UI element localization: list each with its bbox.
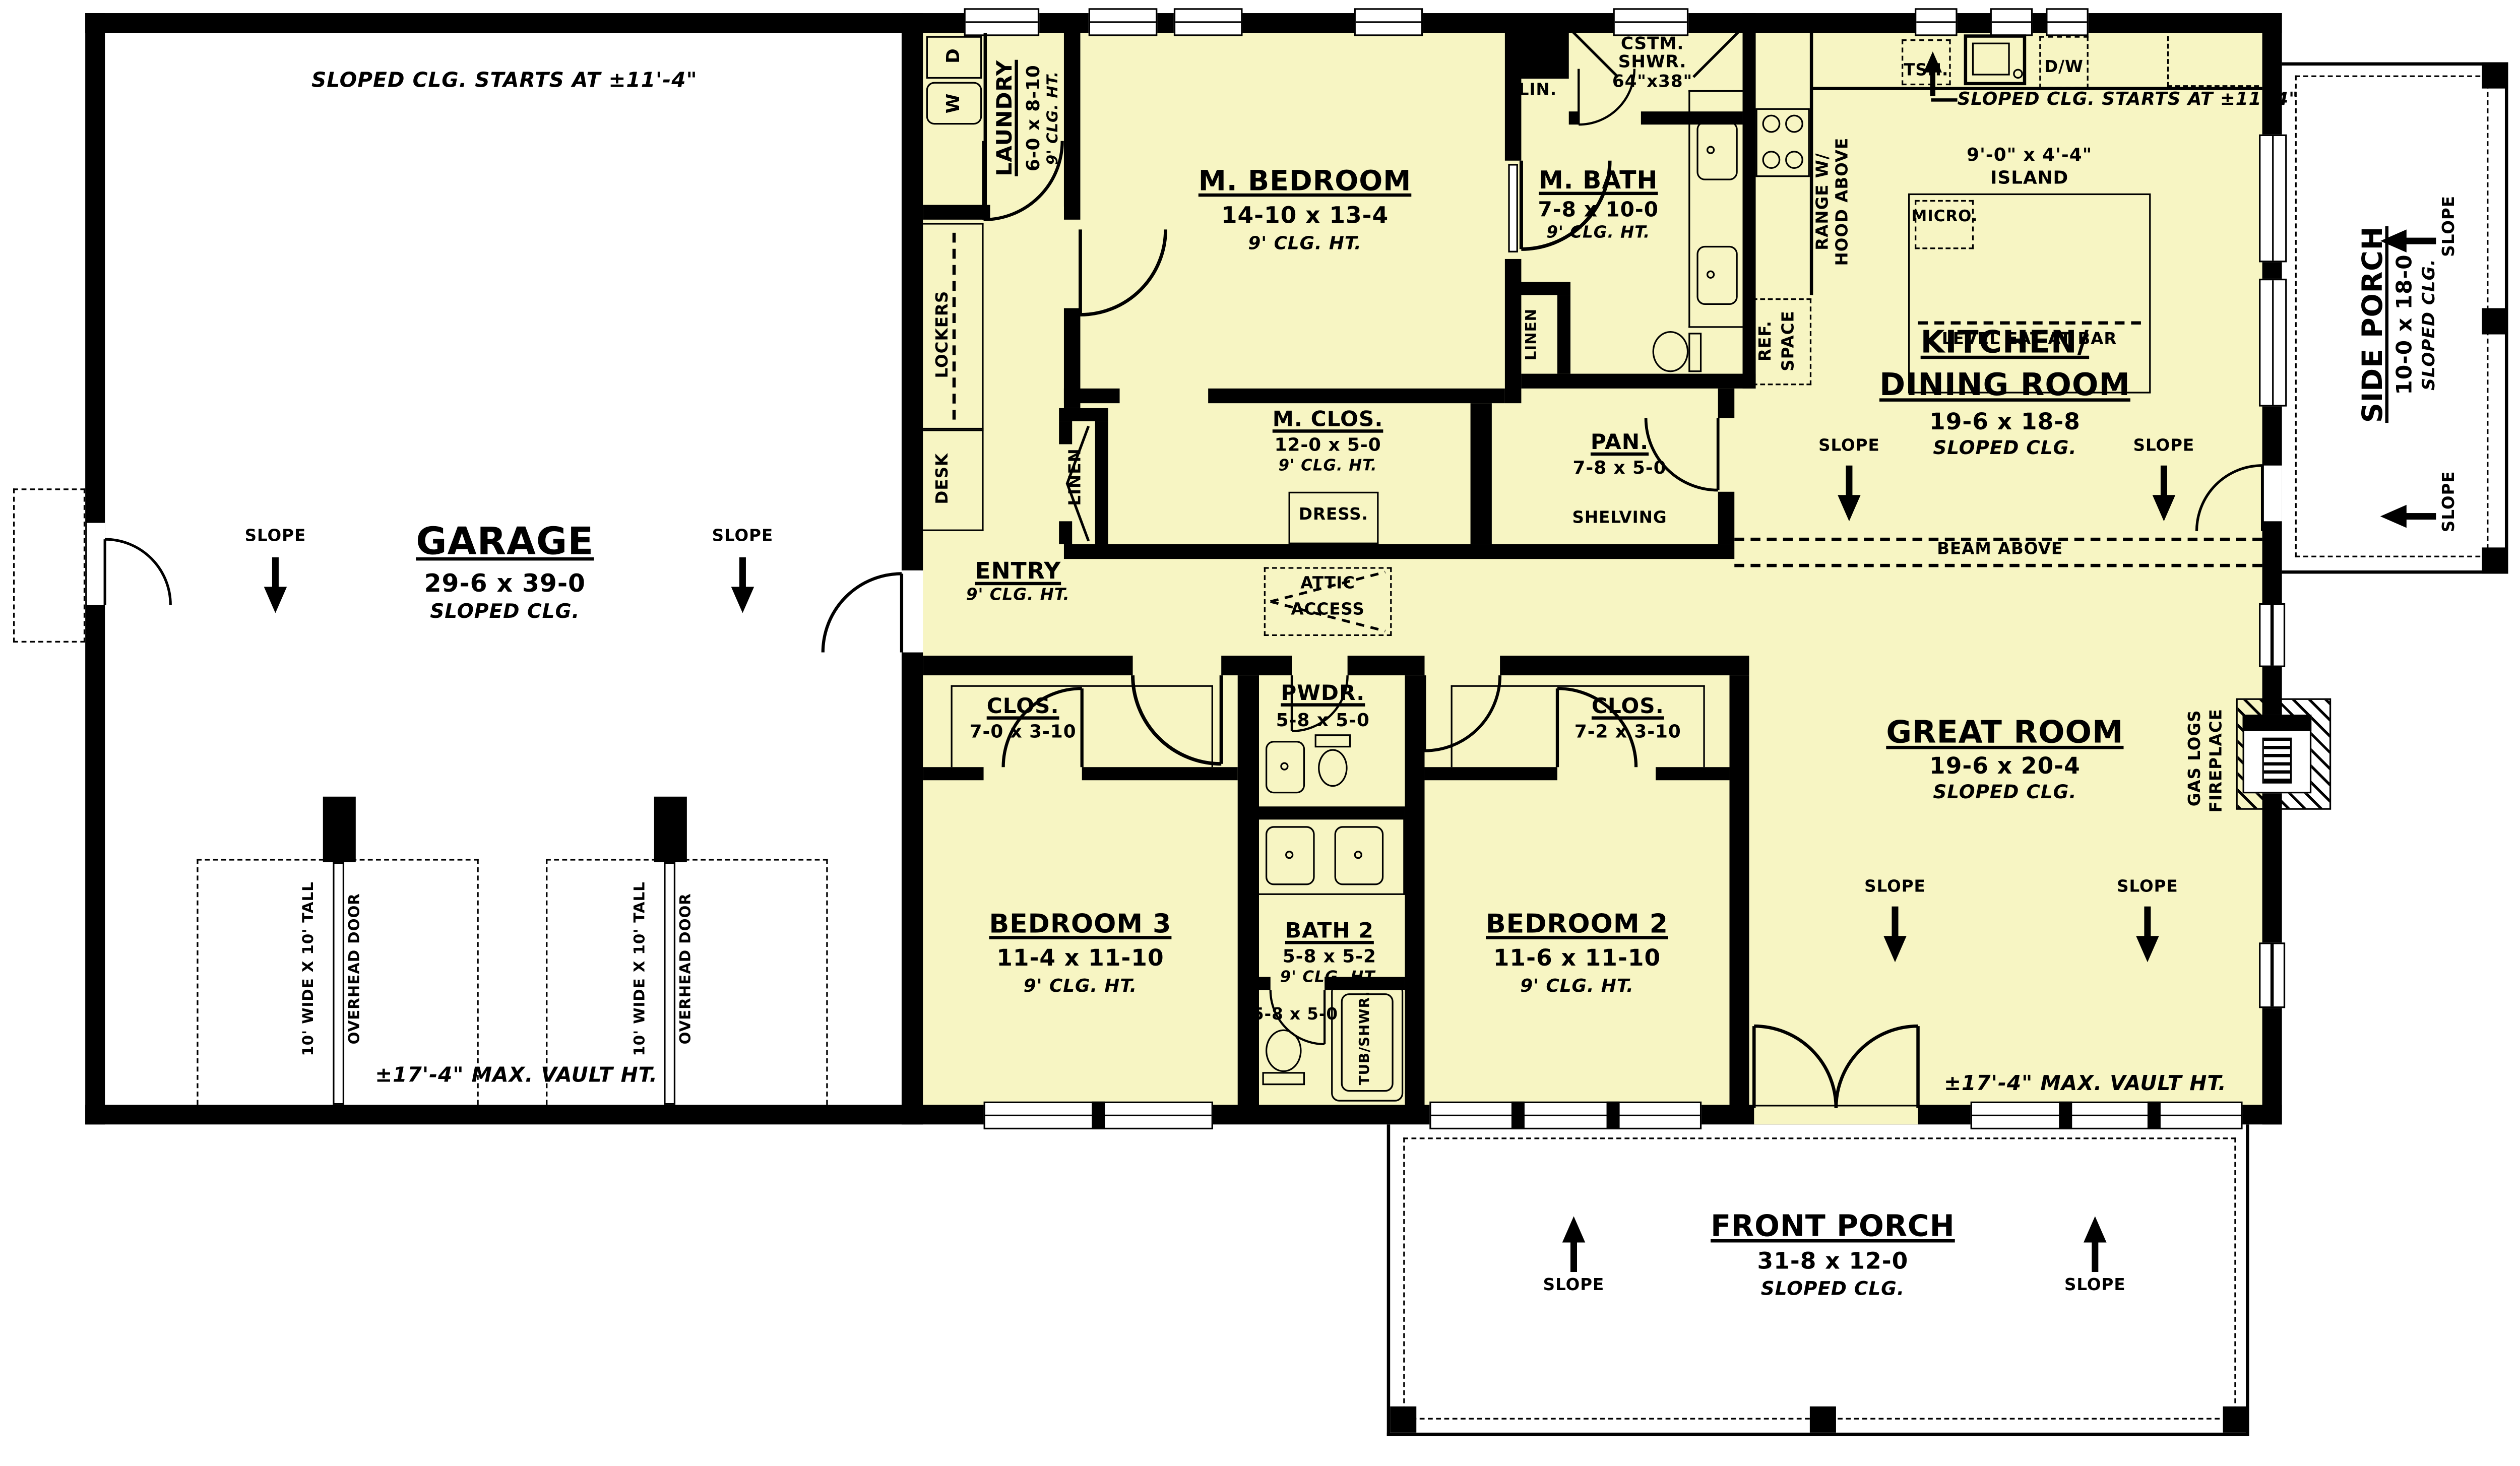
toilet-bowl: [1653, 331, 1689, 372]
lin-label: LIN.: [1511, 84, 1564, 100]
window: [1971, 1102, 2243, 1129]
window: [1915, 8, 1958, 36]
overhead-door-track: [333, 862, 344, 1105]
door: [1646, 418, 1718, 490]
range-label2: HOOD ABOVE: [1835, 95, 1853, 308]
door: [984, 141, 1062, 220]
window-mullion: [2059, 1102, 2072, 1129]
wall: [923, 205, 990, 220]
door: [1080, 229, 1165, 314]
linen-label: LINEN: [1525, 298, 1541, 370]
room-dims: 11-6 x 11-10: [1429, 947, 1724, 971]
room-name: GREAT ROOM: [1849, 718, 2161, 750]
slope-label: SLOPE: [234, 530, 317, 546]
room-dims: 29-6 x 39-0: [374, 572, 636, 597]
room-name: M. BEDROOM: [1157, 169, 1452, 197]
toilet-bowl: [1318, 749, 1348, 787]
island-dims: 9'-0" x 4'-4": [1964, 146, 2095, 164]
ref-label2: SPACE: [1780, 303, 1798, 379]
wall: [1505, 259, 1522, 403]
toilet-tank: [1263, 1072, 1305, 1085]
door: [105, 539, 170, 605]
dw-label: D/W: [2036, 60, 2092, 77]
kitchen-sloped-clg-note: SLOPED CLG. STARTS AT ±11'-4": [1958, 90, 2252, 108]
wall: [902, 653, 923, 1125]
sink-drain: [1285, 851, 1293, 859]
door: [1557, 688, 1636, 767]
micro-label: MICRO.: [1912, 210, 1977, 226]
beam-line: [1734, 564, 2262, 567]
wall: [1718, 492, 1735, 544]
wall: [1471, 403, 1492, 544]
desk-cabinet: [923, 429, 983, 531]
overhead-size-label: 10' WIDE X 10' TALL: [301, 875, 318, 1062]
window: [1429, 1102, 1702, 1129]
wall: [1208, 389, 1505, 403]
overhead-size-label: 10' WIDE X 10' TALL: [633, 875, 650, 1062]
door-slab: [1508, 164, 1518, 252]
door: [1425, 675, 1500, 751]
toilet-tank: [1315, 734, 1351, 747]
beam-label: BEAM ABOVE: [1869, 543, 2131, 559]
room-name: KITCHEN/: [1857, 328, 2152, 360]
room-dims: 11-4 x 11-10: [933, 947, 1228, 971]
window: [2259, 135, 2287, 263]
room-dims: 31-8 x 12-0: [1677, 1251, 1988, 1274]
room-clg: SLOPED CLG.: [374, 602, 636, 622]
overhead-door-label: OVERHEAD DOOR: [348, 882, 364, 1056]
wall: [1729, 675, 1749, 1108]
range-label1: RANGE W/: [1815, 105, 1833, 298]
counter-edge: [1810, 33, 1812, 295]
wall: [1508, 282, 1570, 295]
dryer-label: D: [942, 44, 964, 68]
slope-label: SLOPE: [2123, 439, 2205, 456]
desk-label: DESK: [934, 433, 953, 525]
window: [1174, 8, 1243, 36]
door: [1133, 675, 1222, 764]
wall: [1348, 656, 1425, 675]
wall: [1500, 656, 1749, 675]
door-opening: [2264, 466, 2282, 522]
wall: [902, 13, 923, 570]
window-mullion: [1607, 1102, 1620, 1129]
window: [2259, 603, 2285, 667]
porch-edge: [2282, 62, 2508, 66]
slope-label: SLOPE: [702, 530, 784, 546]
slope-label: SLOPE: [1533, 1279, 1615, 1295]
window: [964, 8, 1040, 36]
room-name: BATH 2: [1271, 921, 1389, 943]
window: [1990, 8, 2033, 36]
slope-arrow: [2380, 505, 2436, 528]
floor-plan: GARAGE 29-6 x 39-0 SLOPED CLG. SLOPE SLO…: [0, 0, 2520, 1466]
room-dims: 14-10 x 13-4: [1157, 205, 1452, 228]
wall: [1656, 767, 1729, 780]
room-dims: 5-8 x 5-2: [1271, 947, 1389, 966]
slope-arrow: [1562, 1216, 1586, 1272]
room-name: FRONT PORCH: [1677, 1213, 1988, 1243]
wall: [1259, 977, 1271, 990]
window-mullion: [1092, 1102, 1105, 1129]
garage-sloped-clg-note: SLOPED CLG. STARTS AT ±11'-4": [311, 71, 705, 91]
wall: [1221, 656, 1292, 675]
great-vault-note: ±17'-4" MAX. VAULT HT.: [1938, 1073, 2233, 1094]
slope-arrow: [2153, 466, 2176, 522]
shelving-label: SHELVING: [1554, 512, 1685, 528]
fireplace-grate: [2262, 738, 2292, 784]
leader-line: [1931, 98, 1958, 101]
fireplace-label1: GAS LOGS: [2187, 715, 2205, 806]
sink-drain: [1707, 271, 1715, 279]
room-clg: 9' CLG. HT.: [951, 589, 1086, 605]
room-clg: 9' CLG. HT.: [1429, 977, 1724, 995]
ref-label1: REF.: [1757, 308, 1776, 373]
slope-label: SLOPE: [2107, 880, 2189, 897]
wall: [1510, 28, 1569, 79]
sloped-clg-arrow: [1924, 51, 1942, 96]
door: [1003, 688, 1082, 767]
porch-post: [2223, 1407, 2249, 1433]
door-opening: [1754, 1107, 1918, 1125]
door: [2196, 466, 2262, 531]
toilet-tank: [1688, 333, 1702, 372]
bifold-door: [1062, 423, 1092, 544]
wall: [1569, 111, 1579, 124]
wall: [1064, 544, 1734, 559]
door: [1292, 675, 1348, 731]
tub-label: TUB/SHWR.: [1357, 993, 1374, 1085]
window: [1354, 8, 1423, 36]
wall: [1405, 675, 1424, 1108]
slope-arrow: [2136, 907, 2159, 963]
attic-label1: ATTIC: [1272, 577, 1383, 594]
sink: [1696, 246, 1737, 305]
door: [1579, 69, 1634, 125]
porch-ceiling-line: [2295, 76, 2489, 557]
front-door-left: [1754, 1026, 1836, 1108]
room-clg: SLOPED CLG.: [1677, 1280, 1988, 1299]
porch-post: [1810, 1407, 1836, 1433]
window-mullion: [2148, 1102, 2161, 1129]
room-dims: 12-0 x 5-0: [1221, 436, 1434, 454]
wall: [1059, 408, 1108, 421]
fireplace-firebox: [2243, 715, 2312, 731]
overhead-door-post: [323, 797, 356, 862]
stoop: [13, 488, 85, 643]
slope-label: SLOPE: [2441, 461, 2459, 543]
kitchen-sink-basin: [1972, 43, 2010, 76]
room-clg: SLOPED CLG.: [1849, 784, 2161, 803]
window-mullion: [1511, 1102, 1525, 1129]
wall: [1095, 421, 1108, 544]
porch-post: [2482, 547, 2508, 573]
slope-label: SLOPE: [2054, 1279, 2136, 1295]
room-clg: 9' CLG. HT.: [1221, 459, 1434, 475]
burner: [1762, 151, 1781, 169]
dress-label: DRESS.: [1292, 508, 1375, 525]
window: [1089, 8, 1158, 36]
corner-cabinet: [2167, 36, 2259, 87]
slope-arrow: [2084, 1216, 2107, 1272]
attic-label2: ACCESS: [1272, 603, 1383, 620]
front-door-right: [1836, 1026, 1918, 1108]
sink-drain: [1707, 146, 1715, 154]
wall: [1521, 374, 1755, 389]
door: [1521, 161, 1610, 249]
slope-label: SLOPE: [1854, 880, 1936, 897]
window: [2259, 279, 2287, 407]
room-clg: SLOPED CLG.: [2420, 242, 2439, 406]
wall: [923, 656, 1132, 675]
lockers-divider: [953, 233, 956, 420]
slope-arrow: [264, 557, 287, 613]
room-clg: 9' CLG. HT.: [1157, 234, 1452, 252]
sink: [1696, 121, 1737, 180]
burner: [1762, 115, 1781, 133]
slope-label: SLOPE: [2441, 185, 2459, 268]
porch-edge: [2246, 1124, 2249, 1436]
sink-drain: [1354, 851, 1362, 859]
island-label: ISLAND: [1964, 169, 2095, 187]
overhead-door-post: [654, 797, 687, 862]
room-name: M. CLOS.: [1221, 410, 1434, 431]
faucet: [2013, 69, 2023, 79]
slope-arrow: [1883, 907, 1907, 963]
porch-edge: [1387, 1124, 1391, 1436]
room-dims: 19-6 x 20-4: [1849, 755, 2161, 779]
burner: [1785, 151, 1803, 169]
wall: [1557, 295, 1570, 373]
room-name: ENTRY: [951, 560, 1086, 584]
wall: [1718, 389, 1735, 418]
toilet-bowl: [1266, 1030, 1302, 1072]
wall: [1082, 767, 1238, 780]
slope-arrow: [1838, 466, 1861, 522]
window: [2046, 8, 2089, 36]
porch-edge: [1387, 1433, 2249, 1436]
porch-edge: [2282, 570, 2508, 574]
room-dims: 19-6 x 18-8: [1857, 411, 2152, 434]
wall: [1064, 389, 1120, 403]
overhead-door-label: OVERHEAD DOOR: [679, 882, 696, 1056]
wall: [1064, 33, 1081, 220]
porch-post: [2482, 62, 2508, 89]
slope-arrow: [731, 557, 754, 613]
door-opening: [87, 523, 105, 605]
room-name2: DINING ROOM: [1857, 370, 2152, 402]
porch-post: [1390, 1407, 1416, 1433]
washer-label: W: [942, 92, 964, 115]
slope-label: SLOPE: [1808, 439, 1891, 456]
room-name: BEDROOM 2: [1429, 911, 1724, 938]
overhead-door-track: [664, 862, 675, 1105]
fireplace-label2: FIREPLACE: [2208, 708, 2226, 813]
window: [2259, 942, 2285, 1008]
room-clg: SLOPED CLG.: [1857, 439, 2152, 459]
wall: [923, 767, 983, 780]
room-name: BEDROOM 3: [933, 911, 1228, 938]
door-opening: [903, 570, 921, 653]
burner: [1785, 115, 1803, 133]
porch-post: [2482, 308, 2508, 334]
room-dims: 10-0 x 18-0: [2393, 229, 2418, 419]
lockers-label: LOCKERS: [934, 259, 953, 410]
door: [823, 573, 902, 652]
room-name: GARAGE: [374, 525, 636, 563]
sink-drain: [1280, 762, 1288, 770]
room-clg: 9' CLG. HT.: [933, 977, 1228, 995]
slope-arrow: [2380, 229, 2436, 252]
wall: [1425, 767, 1557, 780]
